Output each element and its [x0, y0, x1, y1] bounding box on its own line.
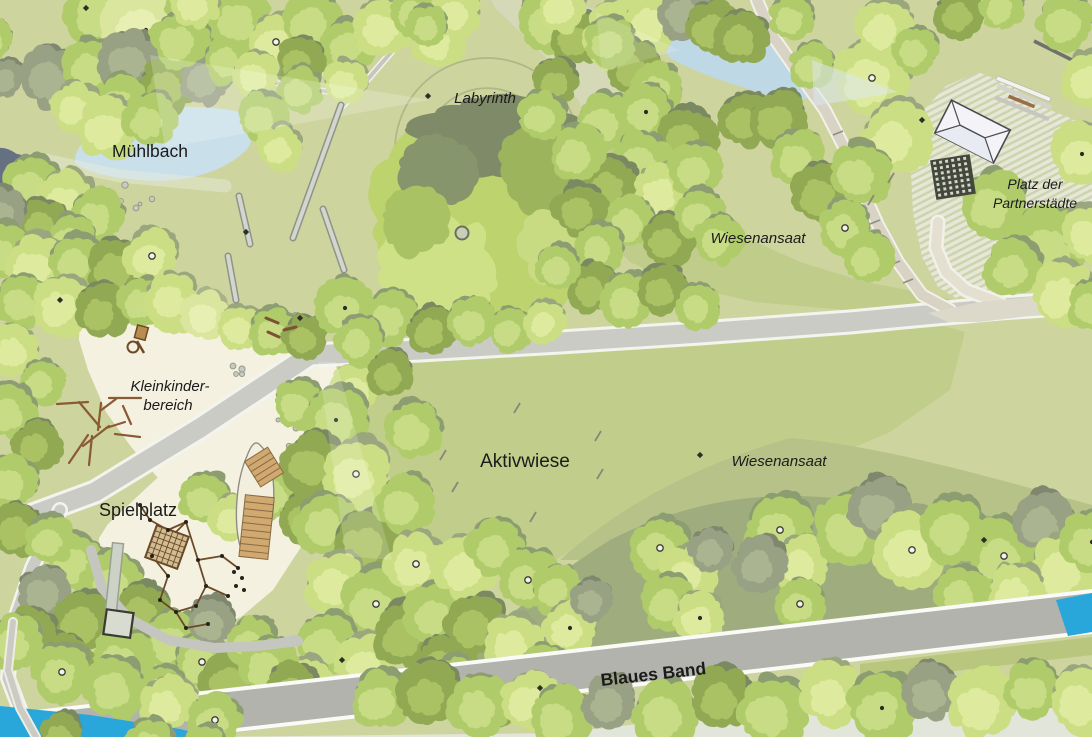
svg-text:Wiesenansaat: Wiesenansaat: [732, 453, 828, 470]
svg-text:Kleinkinder-: Kleinkinder-: [131, 378, 210, 395]
svg-text:bereich: bereich: [143, 397, 192, 414]
svg-text:Aktivwiese: Aktivwiese: [480, 451, 570, 472]
svg-text:Platz der: Platz der: [1007, 176, 1064, 192]
svg-text:Labyrinth: Labyrinth: [454, 90, 516, 107]
svg-text:Partnerstädte: Partnerstädte: [993, 195, 1077, 211]
svg-text:Wiesenansaat: Wiesenansaat: [711, 230, 807, 247]
svg-text:Spielplatz: Spielplatz: [99, 500, 177, 520]
svg-text:Mühlbach: Mühlbach: [112, 141, 188, 161]
